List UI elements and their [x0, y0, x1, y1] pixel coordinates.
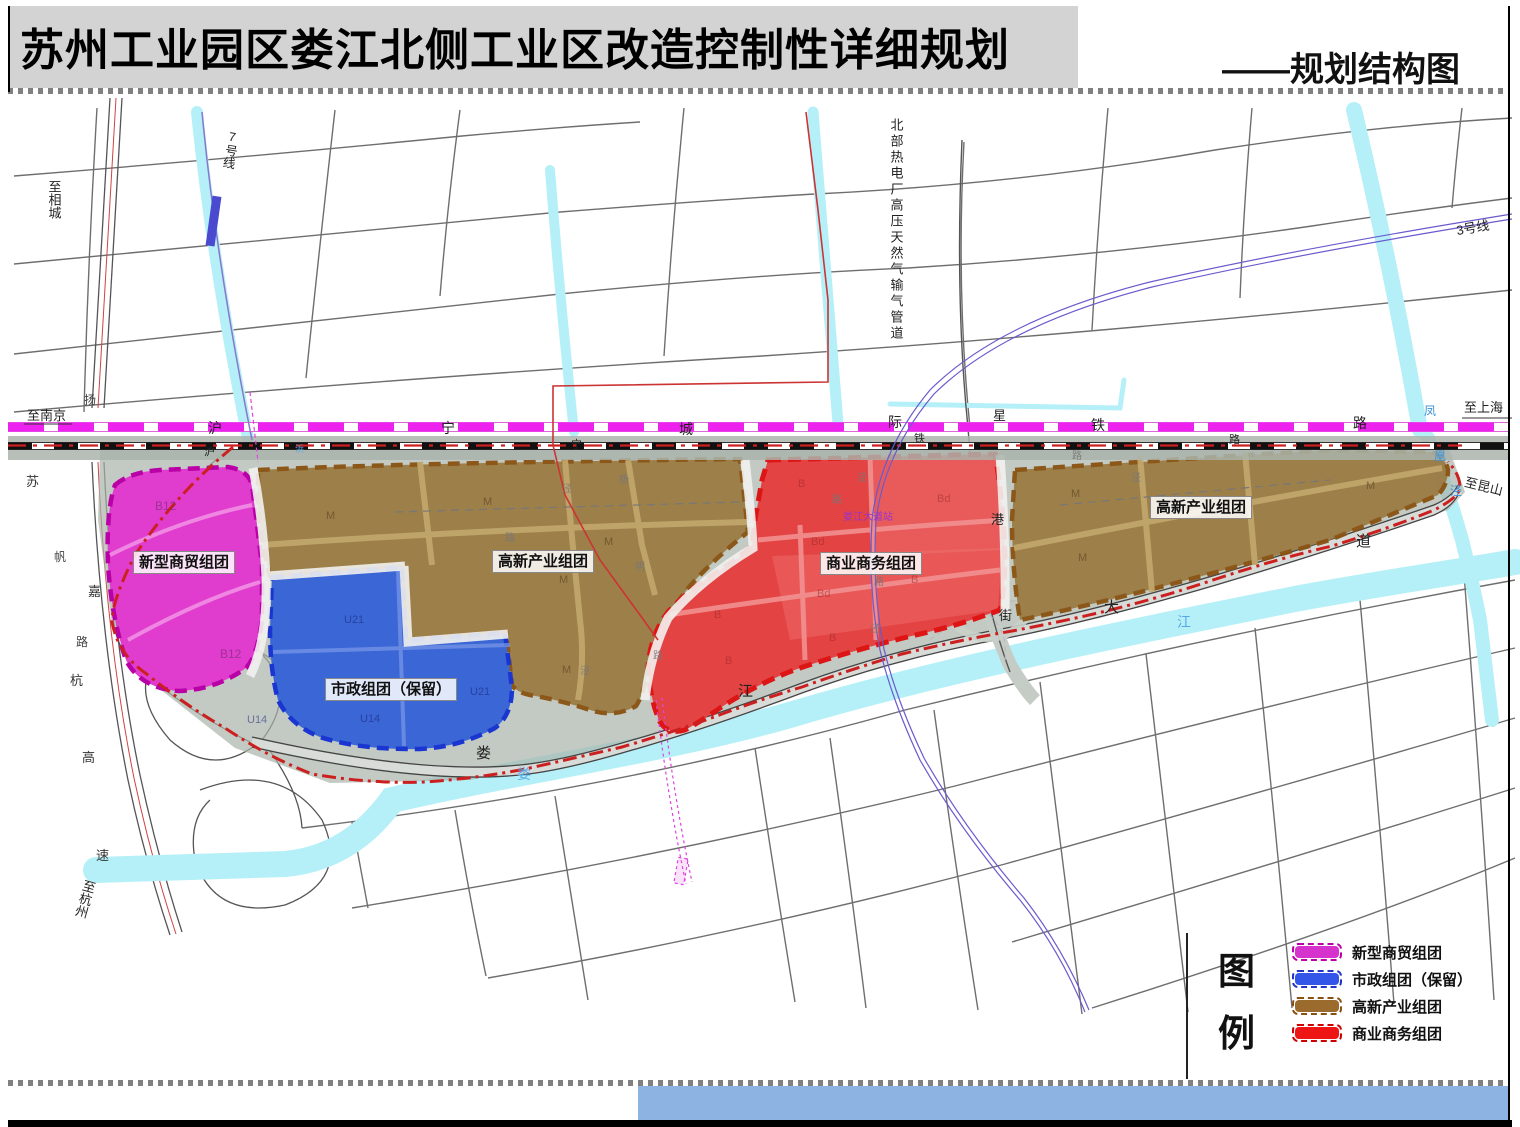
metro-line3-label: 3号线: [1455, 218, 1490, 239]
minor-label: 路: [832, 493, 842, 506]
river-loujiang-char: 娄: [517, 766, 531, 782]
river-fenghuang-char: 凰: [1434, 449, 1446, 463]
river-fenghuang-char: 凤: [1424, 404, 1436, 418]
minor-label: 泾: [1131, 471, 1141, 484]
minor-label: 泾: [870, 622, 880, 635]
dest-shanghai: 至上海: [1464, 400, 1503, 415]
legend-swatch-hightech: [1292, 997, 1342, 1015]
rail-intercity-char: 宁: [441, 420, 455, 436]
road-xinggang-char: 港: [991, 512, 1004, 527]
legend-swatch-municipal: [1292, 970, 1342, 988]
code-m: M: [562, 664, 571, 676]
code-m: M: [1078, 552, 1087, 564]
metro-line7-label: 7号线: [220, 129, 241, 170]
minor-label: 路: [874, 575, 884, 588]
legend: 图 例 新型商贸组团 市政组团（保留） 高新产业组团 商业商务组团: [1186, 933, 1508, 1079]
pipeline-label: 北部热电厂高压天然气输气管道: [889, 118, 904, 342]
road-xinggang-char: 街: [999, 608, 1012, 623]
legend-label: 新型商贸组团: [1352, 942, 1442, 963]
minor-label: 路: [1072, 449, 1082, 462]
code-m: M: [559, 574, 568, 586]
legend-item: 高新产业组团: [1292, 996, 1442, 1016]
river-north-3: [813, 112, 838, 424]
expressway-char: 高: [82, 750, 95, 765]
zone-label-hightech-right: 高新产业组团: [1150, 496, 1252, 519]
minor-label: 明: [635, 561, 645, 573]
minor-label: 扬: [619, 473, 629, 486]
rail-intercity-char: 际: [888, 414, 902, 430]
rail-mainline-char: 沪: [204, 444, 215, 458]
code-m: M: [326, 510, 335, 522]
rail-mainline-char: 路: [1229, 433, 1240, 446]
page-border-left: [8, 6, 10, 92]
legend-item: 商业商务组团: [1292, 1023, 1442, 1043]
expressway-char: 速: [96, 848, 109, 863]
code-bd: Bd: [817, 588, 830, 600]
legend-heading-top: 图: [1218, 941, 1255, 995]
rail-intercity-char: 铁: [1091, 417, 1105, 433]
road-minor-char: 路: [76, 634, 88, 649]
road-loujiang-ave-char: 娄: [476, 745, 491, 762]
zone-label-municipal: 市政组团（保留）: [325, 678, 457, 701]
rail-intercity-char: 路: [1353, 415, 1367, 431]
zone-label-commerce: 新型商贸组团: [133, 551, 235, 574]
river-loujiang-char: 江: [1177, 614, 1191, 630]
code-u14: U14: [360, 713, 380, 725]
page-title: 苏州工业园区娄江北侧工业区改造控制性详细规划: [20, 14, 1070, 78]
railway-intercity: [8, 423, 1508, 432]
code-bd: Bd: [811, 536, 824, 548]
code-u14: U14: [247, 714, 267, 726]
code-bd: Bd: [937, 493, 950, 505]
rail-mainline-char: 铁: [914, 432, 925, 445]
rail-mainline-char: 宁: [571, 437, 582, 451]
code-m: M: [1366, 480, 1375, 492]
minor-label: 泾: [857, 471, 867, 484]
legend-label: 商业商务组团: [1352, 1023, 1442, 1044]
legend-item: 新型商贸组团: [1292, 942, 1442, 962]
page-border-right: [1508, 6, 1510, 1121]
planning-slide: 沪 宁 城 际 铁 路 沪 宁 铁 路 至南京 至相城 至杭州 至上海 至昆山 …: [0, 0, 1520, 1127]
dest-kunshan: 至昆山: [1463, 474, 1504, 498]
code-b: B: [911, 574, 918, 586]
legend-swatch-business: [1292, 1024, 1342, 1042]
code-b: B: [798, 478, 805, 490]
code-b12: B12: [220, 647, 242, 661]
minor-label: 路: [653, 649, 663, 662]
zone-label-business: 商业商务组团: [820, 552, 922, 575]
minor-label-bang: 浜: [295, 444, 304, 454]
code-b: B: [714, 609, 721, 621]
river-small-top-band: [890, 380, 1124, 408]
legend-label: 高新产业组团: [1352, 996, 1442, 1017]
legend-heading-bottom: 例: [1218, 1003, 1255, 1057]
code-m: M: [604, 536, 613, 548]
code-b: B: [725, 655, 732, 667]
legend-item: 市政组团（保留）: [1292, 969, 1472, 989]
zone-label-hightech-left: 高新产业组团: [492, 550, 594, 573]
code-m: M: [1071, 488, 1080, 500]
divider-top: [8, 88, 1510, 94]
minor-label: 泾: [580, 664, 590, 677]
dest-xiangcheng: 至相城: [47, 180, 62, 220]
code-m: M: [483, 496, 492, 508]
road-loujiang-ave-char: 江: [738, 683, 753, 700]
footer-black-line: [8, 1120, 1512, 1127]
road-xinggang-char: 星: [993, 408, 1006, 423]
rail-intercity-char: 沪: [208, 420, 222, 436]
expressway-char: 杭: [70, 673, 83, 688]
minor-label: 泾: [562, 482, 572, 495]
code-u21: U21: [344, 614, 364, 626]
expressway-char: 嘉: [88, 584, 101, 599]
legend-swatch-commerce: [1292, 943, 1342, 961]
expressway-char: 苏: [26, 474, 39, 489]
metro-south-station: [674, 857, 688, 884]
road-minor-char: 扬: [84, 392, 96, 407]
code-b12: B12: [155, 499, 177, 513]
road-loujiang-ave-char: 道: [1356, 533, 1371, 550]
rail-intercity-char: 城: [679, 421, 693, 437]
metro-station-label: 娄江大道站: [843, 510, 893, 523]
code-b: B: [829, 632, 836, 644]
river-fenghuang-char: 泾: [1450, 484, 1462, 498]
code-u21: U21: [470, 686, 490, 698]
footer-blue-bar: [638, 1086, 1510, 1121]
dest-nanjing: 至南京: [27, 408, 66, 423]
river-north-4: [1354, 110, 1420, 430]
dest-hangzhou: 至杭州: [72, 878, 97, 920]
minor-label: 路: [505, 531, 515, 544]
road-loujiang-ave-char: 大: [1104, 599, 1119, 616]
page-subtitle: ——规划结构图: [1222, 42, 1460, 91]
legend-label: 市政组团（保留）: [1352, 969, 1472, 990]
road-minor-char: 帆: [54, 549, 66, 564]
